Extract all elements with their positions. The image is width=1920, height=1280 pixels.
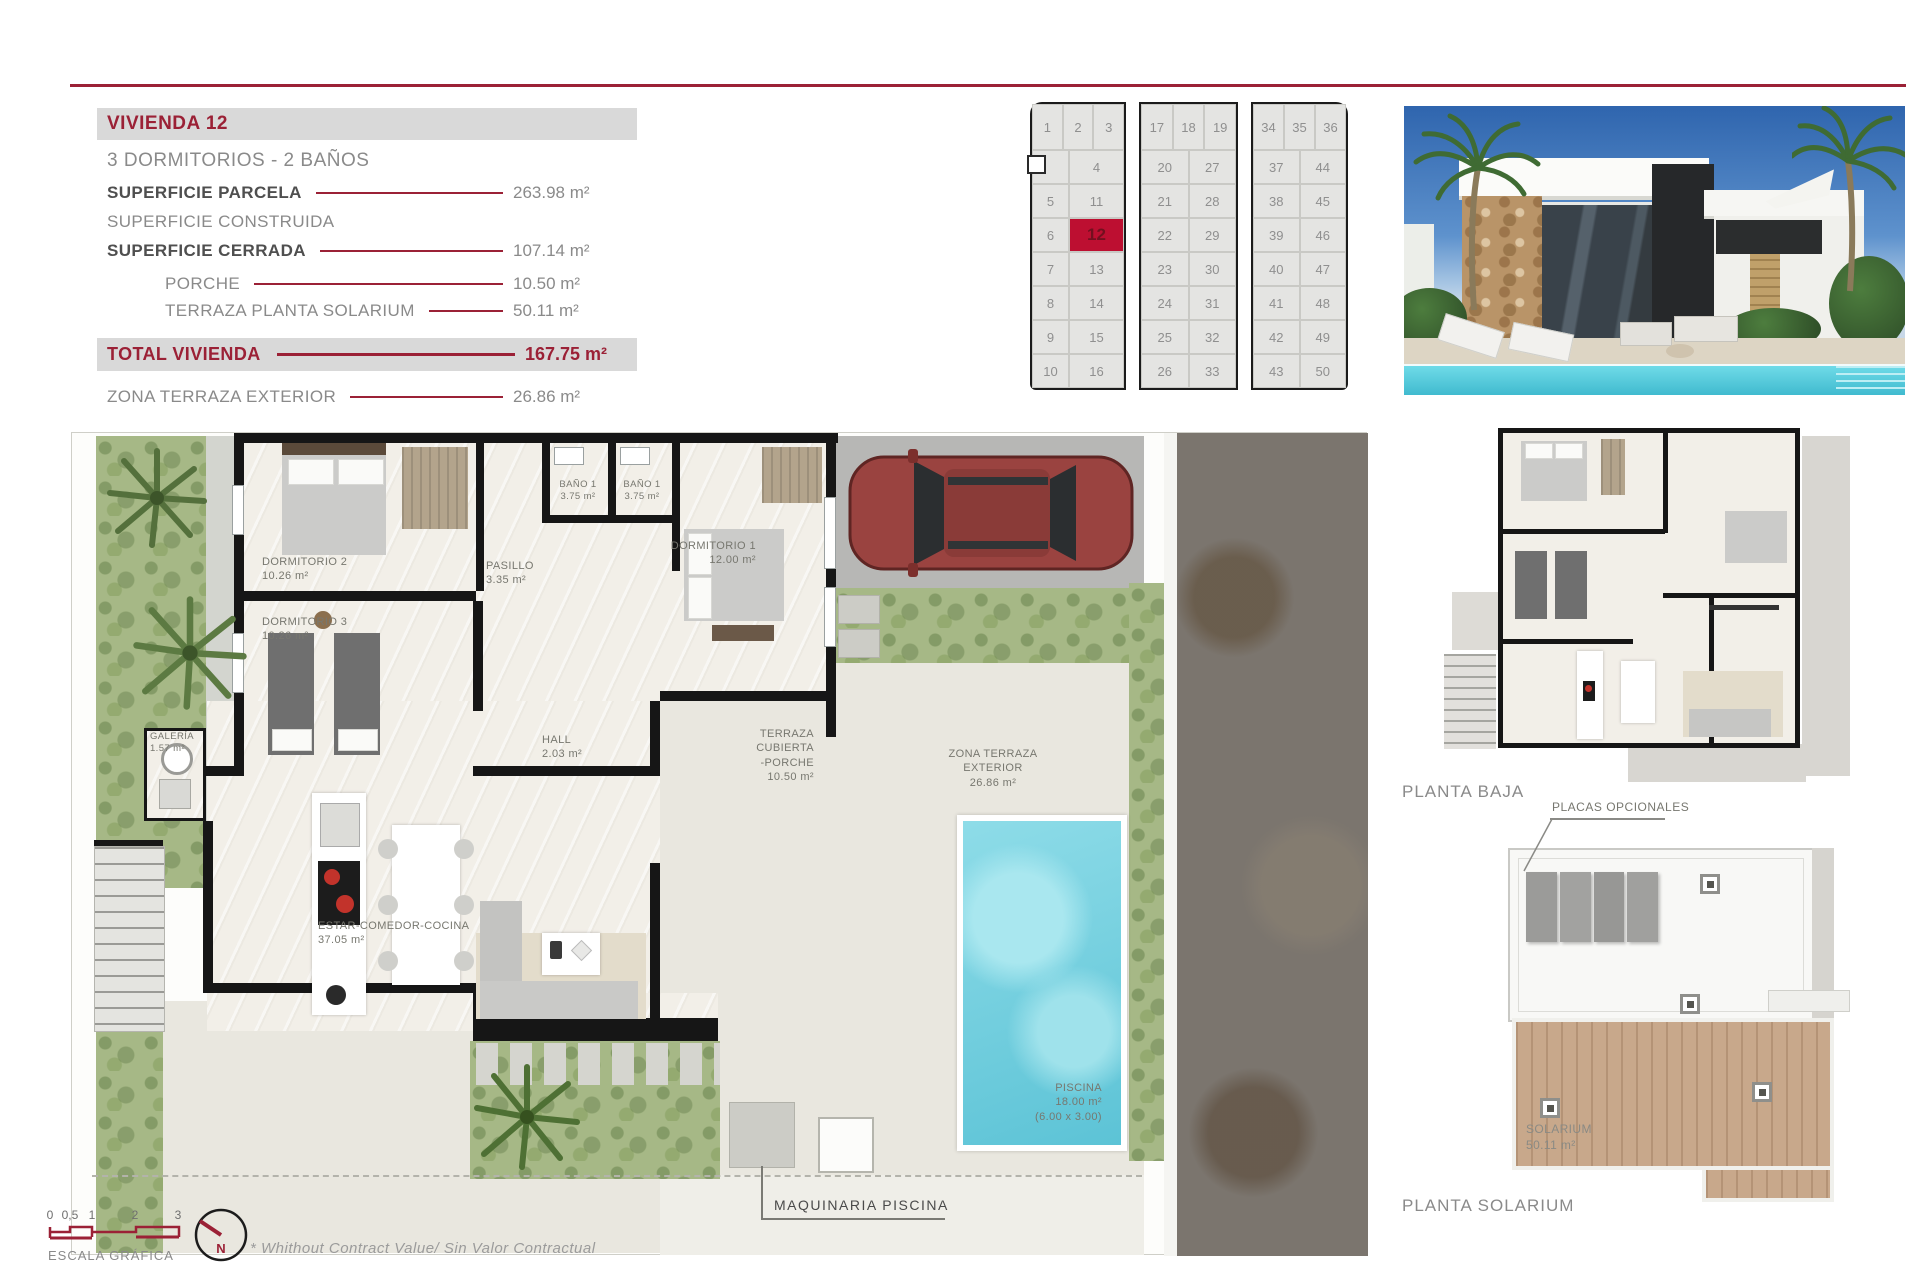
- room-label-estar: ESTAR-COMEDOR-COCINA 37.05 m²: [318, 919, 469, 948]
- unit-cell: 4: [1069, 150, 1124, 184]
- leader-line: [316, 192, 503, 194]
- leader-line: [429, 310, 503, 312]
- mini-closet: [1601, 439, 1625, 495]
- dorm2-closet: [402, 447, 468, 529]
- unit-cell: 39: [1253, 218, 1300, 252]
- unit-cell: 40: [1253, 252, 1300, 286]
- unit-cell: 47: [1300, 252, 1347, 286]
- row-superficie-parcela: SUPERFICIE PARCELA 263.98 m²: [107, 183, 619, 203]
- outdoor-sofa: [1674, 316, 1738, 342]
- unit-block: 1718192027212822292330243125322633: [1139, 102, 1238, 390]
- unit-cell: 29: [1189, 218, 1237, 252]
- coffee-table: [1666, 344, 1694, 358]
- south-palm: [472, 1057, 582, 1177]
- room-label-zona-terraza: ZONA TERRAZA EXTERIOR 26.86 m²: [918, 747, 1068, 790]
- unit-cell: 41: [1253, 286, 1300, 320]
- unit-cell: 20: [1141, 150, 1189, 184]
- chair: [378, 951, 398, 971]
- scale-bar: 00,5123 ESCALA GRÁFICA: [44, 1208, 184, 1254]
- south-band: [660, 1175, 1144, 1255]
- room-label-piscina: PISCINA 18.00 m² (6.00 x 3.00): [1004, 1081, 1102, 1124]
- mini-pillow: [1555, 443, 1583, 459]
- pillow: [338, 459, 384, 485]
- room-label-bano1a: BAÑO 1 3.75 m²: [550, 479, 606, 504]
- row-zona-terraza: ZONA TERRAZA EXTERIOR 26.86 m²: [107, 387, 619, 407]
- unit-cell: 45: [1300, 184, 1347, 218]
- skylight: [1700, 874, 1720, 894]
- mini-burner-dot: [1585, 685, 1592, 692]
- solarium-label: SOLARIUM 50.11 m²: [1526, 1122, 1592, 1153]
- mini-gray-right: [1802, 436, 1850, 776]
- solarium-plan: SOLARIUM 50.11 m²: [1500, 840, 1910, 1212]
- skylight: [1540, 1098, 1560, 1118]
- mini-house: [1498, 428, 1800, 748]
- unit-cell: 21: [1141, 184, 1189, 218]
- wall-left-living: [203, 821, 213, 983]
- window: [824, 497, 836, 569]
- wall-living-east-low: [650, 863, 660, 1018]
- unit-cell: [1032, 150, 1069, 184]
- scale-bar-graphic: [48, 1224, 182, 1242]
- palm-tree: [1792, 106, 1905, 296]
- scale-tick: 2: [132, 1208, 139, 1222]
- galeria-cabinet: [159, 779, 191, 809]
- pillow: [338, 729, 378, 751]
- unit-cell: 1: [1032, 104, 1063, 150]
- unit-cell: 35: [1284, 104, 1315, 150]
- wall-dorm1-south: [660, 691, 836, 701]
- scale-tick: 0: [47, 1208, 54, 1222]
- unit-cell: 23: [1141, 252, 1189, 286]
- unit-cell: 48: [1300, 286, 1347, 320]
- unit-cell: 19: [1204, 104, 1236, 150]
- unit-cell: 25: [1141, 320, 1189, 354]
- chair: [378, 839, 398, 859]
- unit-cell: 43: [1253, 354, 1300, 388]
- mini-gray-bottom: [1628, 744, 1806, 782]
- garden-palm: [102, 443, 212, 553]
- tablet-icon: [550, 941, 562, 959]
- pillow: [288, 459, 334, 485]
- disclaimer: * Whithout Contract Value/ Sin Valor Con…: [250, 1240, 596, 1257]
- mini-sofa: [1689, 709, 1771, 737]
- unit-cell: 28: [1189, 184, 1237, 218]
- scale-label: ESCALA GRÁFICA: [48, 1248, 174, 1263]
- dorm1-bench: [712, 625, 774, 641]
- unit-block: 12345116127138149151016: [1030, 102, 1126, 390]
- unit-cell: 38: [1253, 184, 1300, 218]
- kitchen-sink: [320, 803, 360, 847]
- unit-cell: 50: [1300, 354, 1347, 388]
- unit-cell: 46: [1300, 218, 1347, 252]
- wall-porch-pillar: [826, 691, 836, 737]
- skylight: [1752, 1082, 1772, 1102]
- total-vivienda-bar: TOTAL VIVIENDA 167.75 m²: [97, 338, 637, 371]
- wall-living-east-up: [650, 701, 660, 773]
- window: [232, 485, 244, 535]
- block-gap: [1238, 102, 1251, 390]
- wall-d2-d3: [244, 591, 476, 601]
- maquinaria-pad: [729, 1102, 795, 1168]
- unit-cell: 26: [1141, 354, 1189, 388]
- pool-steps: [1836, 366, 1905, 390]
- row-terraza-solarium: TERRAZA PLANTA SOLARIUM 50.11 m²: [107, 301, 619, 321]
- unit-cell: 10: [1032, 354, 1069, 388]
- unit-cell: 5: [1032, 184, 1069, 218]
- room-label-dormitorio1: DORMITORIO 1 12.00 m²: [670, 539, 756, 568]
- unit-cell: 9: [1032, 320, 1069, 354]
- solarium-deck-ext: [1702, 1166, 1834, 1202]
- room-label-hall: HALL 2.03 m²: [542, 733, 582, 762]
- room-label-galeria: GALERÍA 1.57 m²: [150, 731, 194, 756]
- wall-bath-west: [542, 443, 550, 519]
- site-plan-unit-grid: 1234511612713814915101617181920272128222…: [1030, 102, 1348, 390]
- row-superficie-construida: SUPERFICIE CONSTRUIDA: [107, 212, 619, 232]
- wall-corridor: [473, 601, 483, 711]
- wall-bath-south: [542, 515, 680, 523]
- leader-line: [277, 353, 515, 356]
- mini-table: [1621, 661, 1655, 723]
- pillow: [688, 577, 712, 619]
- unit-cell: 30: [1189, 252, 1237, 286]
- room-label-dormitorio2: DORMITORIO 2 10.26 m²: [262, 555, 347, 584]
- unit-cell: 6: [1032, 218, 1069, 252]
- scale-ticks: 00,5123: [50, 1208, 178, 1222]
- mini-gray-left: [1452, 592, 1500, 650]
- bath-fixture: [554, 447, 584, 465]
- maquinaria-leader-v: [761, 1166, 763, 1218]
- unit-cell: 15: [1069, 320, 1124, 354]
- unit-cell: 14: [1069, 286, 1124, 320]
- wall-living-north: [473, 766, 660, 776]
- scale-tick: 3: [175, 1208, 182, 1222]
- dining-table: [392, 825, 460, 985]
- leader-line: [254, 283, 503, 285]
- mini-tv: [1709, 605, 1779, 610]
- garden-palm: [130, 593, 250, 713]
- mini-pillow: [1525, 443, 1553, 459]
- vivienda-title-bar: VIVIENDA 12: [97, 108, 637, 140]
- wall-d2-east: [476, 443, 484, 591]
- brochure-page: VIVIENDA 12 3 DORMITORIOS - 2 BAÑOS SUPE…: [0, 0, 1920, 1280]
- main-floor-plan: DORMITORIO 2 10.26 m² DORMITORIO 3 10.26…: [71, 432, 1367, 1255]
- scale-tick: 1: [89, 1208, 96, 1222]
- maquinaria-leader-h: [761, 1218, 945, 1220]
- unit-cell: 16: [1069, 354, 1124, 388]
- unit-cell: 8: [1032, 286, 1069, 320]
- unit-cell: 37: [1253, 150, 1300, 184]
- row-porche: PORCHE 10.50 m²: [107, 274, 619, 294]
- bath-fixture: [620, 447, 650, 465]
- skylight: [1680, 994, 1700, 1014]
- step-pad: [838, 595, 880, 624]
- boundary-gap: [1164, 433, 1177, 1256]
- chair: [454, 839, 474, 859]
- pool-gate: [818, 1117, 874, 1173]
- room-label-bano1b: BAÑO 1 3.75 m²: [614, 479, 670, 504]
- burner: [324, 869, 340, 885]
- unit-cell: 13: [1069, 252, 1124, 286]
- room-label-dormitorio3: DORMITORIO 3 10.26 m²: [262, 615, 347, 644]
- unit-cell: 32: [1189, 320, 1237, 354]
- room-label-terraza-cubierta: TERRAZA CUBIERTA -PORCHE 10.50 m²: [712, 727, 814, 784]
- unit-cell: 49: [1300, 320, 1347, 354]
- leader-line: [320, 250, 503, 252]
- unit-block: 3435363744384539464047414842494350: [1251, 102, 1348, 390]
- row-superficie-cerrada: SUPERFICIE CERRADA 107.14 m²: [107, 241, 619, 261]
- unit-cell: 42: [1253, 320, 1300, 354]
- leader-line: [350, 396, 503, 398]
- unit-cell: 22: [1141, 218, 1189, 252]
- unit-cell: 7: [1032, 252, 1069, 286]
- unit-cell: 3: [1093, 104, 1124, 150]
- stairs-top-wall: [94, 840, 163, 846]
- north-arrow: N: [192, 1206, 250, 1264]
- unit-cell: 33: [1189, 354, 1237, 388]
- unit-cell: 17: [1141, 104, 1173, 150]
- north-letter: N: [216, 1241, 225, 1256]
- unit-cell: 2: [1063, 104, 1094, 150]
- pool-right-hedge: [1129, 583, 1164, 1161]
- dorm2-headboard: [282, 443, 386, 455]
- plot-dashed-line: [92, 1175, 1142, 1177]
- wall-bottom-b: [473, 1018, 718, 1041]
- cooktop: [318, 861, 360, 925]
- unit-cell: 36: [1315, 104, 1346, 150]
- placas-leader-icon: [1500, 795, 1620, 885]
- unit-cell: 18: [1173, 104, 1205, 150]
- wall-jog: [203, 766, 244, 776]
- unit-cell: 27: [1189, 150, 1237, 184]
- wall-top: [234, 433, 838, 443]
- vivienda-title: VIVIENDA 12: [107, 113, 228, 135]
- mini-twin-bed: [1515, 551, 1547, 619]
- mini-twin-bed: [1555, 551, 1587, 619]
- pillow: [272, 729, 312, 751]
- bedrooms-baths-subtitle: 3 DORMITORIOS - 2 BAÑOS: [107, 150, 369, 172]
- chair: [378, 895, 398, 915]
- mini-bed-right: [1725, 511, 1787, 563]
- chair: [454, 895, 474, 915]
- unit-cell: 31: [1189, 286, 1237, 320]
- top-rule: [70, 84, 1906, 87]
- room-label-pasillo: PASILLO 3.35 m²: [486, 559, 534, 588]
- roof-ledge: [1768, 990, 1850, 1012]
- plot-notch: [1027, 155, 1046, 174]
- step-pad: [838, 629, 880, 658]
- burner: [336, 895, 354, 913]
- unit-cell: 24: [1141, 286, 1189, 320]
- chair: [454, 951, 474, 971]
- photo-pool: [1404, 364, 1905, 395]
- window: [824, 587, 836, 647]
- sofa-seat: [480, 981, 638, 1019]
- outdoor-sofa: [1620, 322, 1672, 346]
- stairs: [94, 846, 165, 1032]
- mini-stairs: [1444, 654, 1496, 749]
- villa-photo: [1404, 106, 1905, 395]
- dorm1-wardrobe: [762, 447, 822, 503]
- unit-cell: 34: [1253, 104, 1284, 150]
- maquinaria-label: MAQUINARIA PISCINA: [774, 1197, 949, 1213]
- car-top-view: [844, 447, 1138, 579]
- mini-planta-baja: [1440, 424, 1860, 786]
- neighbor-parcel: [1177, 433, 1368, 1256]
- palm-tree: [1412, 110, 1542, 320]
- scale-tick: 0,5: [62, 1208, 79, 1222]
- unit-cell: 11: [1069, 184, 1124, 218]
- unit-cell: 12: [1069, 218, 1124, 252]
- stool: [326, 985, 346, 1005]
- planta-solarium-label: PLANTA SOLARIUM: [1402, 1196, 1574, 1216]
- block-gap: [1126, 102, 1139, 390]
- unit-cell: 44: [1300, 150, 1347, 184]
